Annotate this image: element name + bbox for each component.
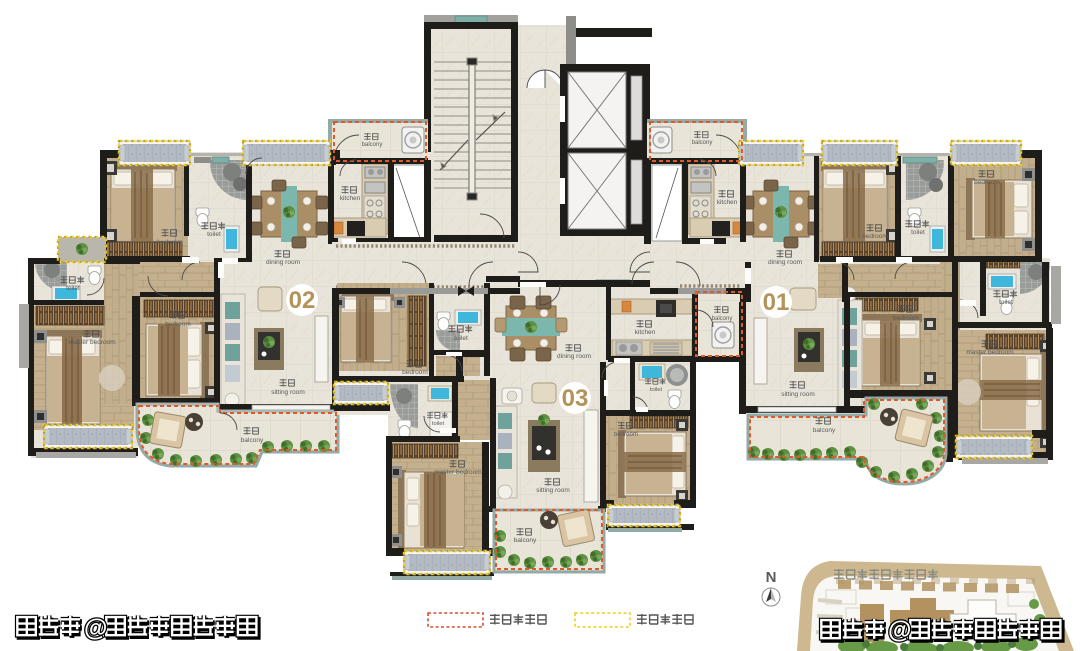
svg-text:sitting room: sitting room [536, 487, 570, 494]
svg-text:balcony: balcony [712, 316, 733, 322]
svg-text:03: 03 [562, 385, 589, 412]
svg-text:dining room: dining room [768, 259, 802, 266]
svg-text:N: N [766, 569, 777, 586]
svg-text:bedroom: bedroom [614, 432, 638, 438]
svg-text:master bedroom: master bedroom [966, 349, 1013, 356]
svg-text:balcony: balcony [692, 140, 713, 146]
svg-text:@: @ [888, 617, 911, 644]
svg-text:toilet: toilet [650, 387, 663, 393]
svg-text:bedroom: bedroom [402, 369, 428, 376]
svg-text:balcony: balcony [514, 537, 537, 544]
svg-text:dining room: dining room [266, 259, 300, 266]
svg-text:toilet: toilet [999, 299, 1013, 306]
svg-text:toilet: toilet [454, 335, 468, 342]
svg-text:bedroom: bedroom [893, 315, 919, 322]
svg-text:@: @ [84, 615, 107, 642]
svg-text:bedroom: bedroom [165, 321, 191, 328]
svg-text:toilet: toilet [911, 229, 925, 236]
svg-text:master bedroom: master bedroom [68, 339, 115, 346]
svg-text:kitchen: kitchen [717, 199, 738, 206]
svg-text:02: 02 [289, 287, 316, 314]
svg-text:balcony: balcony [362, 142, 383, 148]
svg-text:sitting room: sitting room [781, 391, 815, 398]
svg-text:balcony: balcony [813, 427, 836, 434]
svg-text:kitchen: kitchen [340, 195, 361, 202]
svg-text:master bedroom: master bedroom [434, 469, 481, 476]
svg-text:bedroom: bedroom [157, 239, 183, 246]
svg-text:toilet: toilet [66, 285, 80, 292]
svg-text:bedroom: bedroom [862, 233, 888, 240]
svg-text:01: 01 [763, 289, 790, 316]
svg-text:sitting room: sitting room [271, 389, 305, 396]
svg-text:toilet: toilet [432, 421, 445, 427]
svg-text:dining room: dining room [557, 353, 591, 360]
svg-text:kitchen: kitchen [635, 329, 656, 336]
svg-text:balcony: balcony [241, 437, 264, 444]
svg-text:bedroom: bedroom [974, 179, 1000, 186]
svg-text:toilet: toilet [207, 231, 221, 238]
